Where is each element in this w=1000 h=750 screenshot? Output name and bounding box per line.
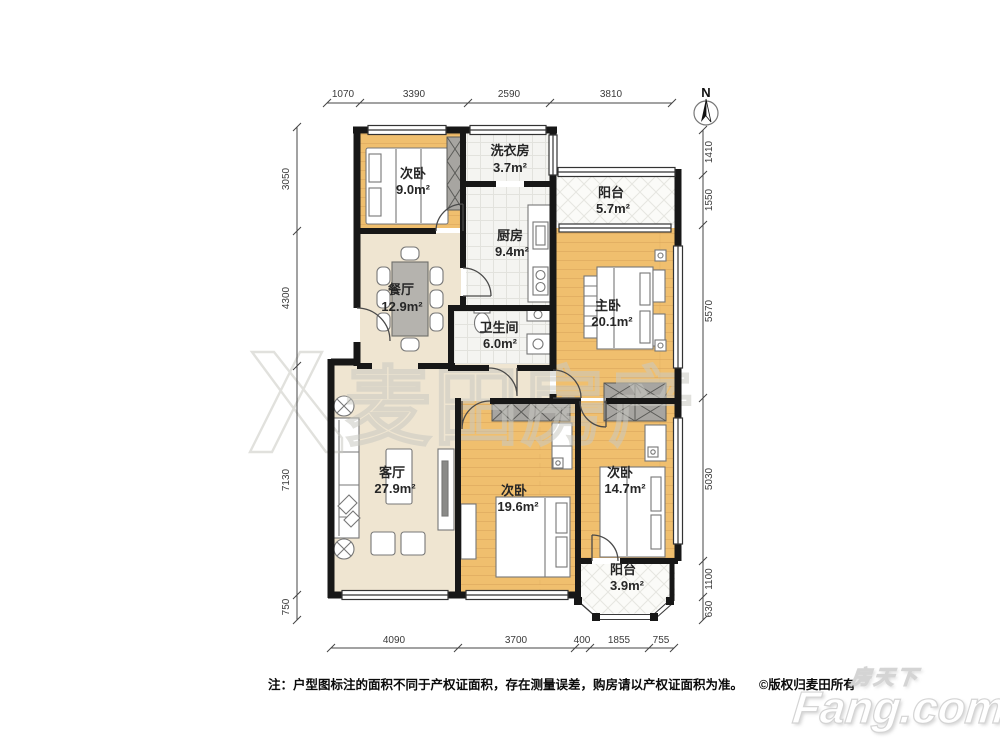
dim-left-3: 750 xyxy=(281,598,292,615)
floorplan-svg: 麦田房产 xyxy=(0,0,1000,750)
room-label-bathroom: 卫生间 xyxy=(479,320,518,335)
dim-left-1: 4300 xyxy=(281,286,292,309)
ac-unit-icon xyxy=(655,340,666,351)
room-label-bedroom-c: 次卧 xyxy=(607,465,633,480)
chair xyxy=(430,290,443,308)
room-area-master: 20.1m² xyxy=(591,314,633,329)
room-area-laundry: 3.7m² xyxy=(493,160,528,175)
shower xyxy=(527,334,550,354)
chair xyxy=(430,313,443,331)
dim-top-3: 3810 xyxy=(600,89,623,100)
room-area-balcony-bottom: 3.9m² xyxy=(610,578,645,593)
ac-unit-icon xyxy=(553,458,563,468)
dim-bottom-4: 755 xyxy=(653,635,670,646)
pillow xyxy=(556,537,567,567)
room-area-bedroom-c: 14.7m² xyxy=(604,481,646,496)
ac-unit-icon xyxy=(655,250,666,261)
floorplan-page: 麦田房产 xyxy=(0,0,1000,750)
dim-top-1: 3390 xyxy=(403,89,426,100)
room-area-living: 27.9m² xyxy=(374,481,416,496)
room-label-laundry: 洗衣房 xyxy=(490,143,529,158)
burner xyxy=(536,271,545,280)
pillow xyxy=(369,188,381,216)
room-label-living: 客厅 xyxy=(379,465,405,480)
burner xyxy=(536,283,545,292)
bath-sink-basin xyxy=(534,311,542,319)
dim-top-0: 1070 xyxy=(332,89,355,100)
desk xyxy=(461,504,476,559)
room-area-bathroom: 6.0m² xyxy=(483,336,518,351)
pillow xyxy=(651,477,661,511)
pillow xyxy=(651,515,661,549)
north-label: N xyxy=(701,85,710,100)
pillow xyxy=(640,311,650,343)
chair xyxy=(430,267,443,285)
dim-bottom-2: 400 xyxy=(574,635,591,646)
footer-note: 注：户型图标注的面积不同于产权证面积，存在测量误差，购房请以产权证面积为准。©版… xyxy=(268,674,828,693)
dim-top-2: 2590 xyxy=(498,89,521,100)
tv-icon xyxy=(442,461,448,516)
watermark-text: 麦田房产 xyxy=(345,360,697,456)
chair xyxy=(401,338,419,351)
room-area-bedroom-b: 19.6m² xyxy=(497,499,539,514)
dim-right-3: 5030 xyxy=(704,467,715,490)
chair xyxy=(401,247,419,260)
room-area-bedroom-a: 9.0m² xyxy=(396,182,431,197)
room-label-kitchen: 厨房 xyxy=(497,228,523,243)
stool xyxy=(371,532,395,555)
room-label-master: 主卧 xyxy=(595,298,621,313)
dim-right-5: 630 xyxy=(704,600,715,617)
pillow xyxy=(556,503,567,533)
dim-right-2: 5570 xyxy=(704,299,715,322)
room-area-kitchen: 9.4m² xyxy=(495,244,530,259)
pillow xyxy=(640,273,650,305)
north-arrow-icon: N xyxy=(694,85,718,125)
dim-right-1: 1550 xyxy=(704,188,715,211)
fang-logo: 房天下 Fang.com xyxy=(793,661,998,734)
room-label-dining: 餐厅 xyxy=(387,282,414,297)
dim-left-0: 3050 xyxy=(281,167,292,190)
room-label-bedroom-a: 次卧 xyxy=(400,166,426,181)
dim-bottom-1: 3700 xyxy=(505,635,528,646)
fang-logo-en: Fang.com xyxy=(790,682,1000,734)
room-label-balcony-bottom: 阳台 xyxy=(610,562,636,577)
room-label-balcony-top: 阳台 xyxy=(598,185,624,200)
dim-bottom-3: 1855 xyxy=(608,635,631,646)
nightstand xyxy=(653,270,665,302)
pillow xyxy=(369,154,381,182)
disclaimer-text: 注：户型图标注的面积不同于产权证面积，存在测量误差，购房请以产权证面积为准。 xyxy=(268,678,743,692)
room-area-balcony-top: 5.7m² xyxy=(596,201,631,216)
floor-balcony-top xyxy=(556,175,675,225)
stool xyxy=(401,532,425,555)
dim-bottom-0: 4090 xyxy=(383,635,406,646)
dim-right-0: 1410 xyxy=(704,140,715,163)
dim-right-4: 1100 xyxy=(704,568,715,590)
dim-left-2: 7130 xyxy=(281,468,292,491)
room-label-bedroom-b: 次卧 xyxy=(501,483,527,498)
kitchen-sink-basin xyxy=(536,226,545,245)
room-area-dining: 12.9m² xyxy=(381,299,423,314)
